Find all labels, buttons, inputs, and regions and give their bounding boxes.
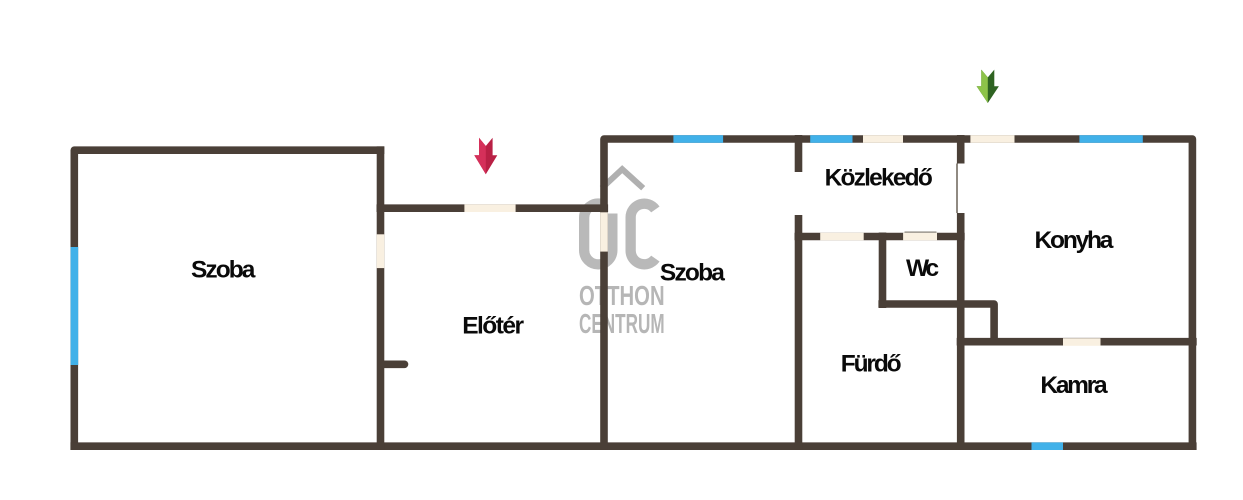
svg-text:CENTRUM: CENTRUM bbox=[579, 308, 665, 339]
svg-text:Kamra: Kamra bbox=[1040, 372, 1108, 399]
svg-text:OTTHON: OTTHON bbox=[579, 280, 665, 311]
svg-text:Közlekedő: Közlekedő bbox=[825, 165, 933, 192]
svg-text:Wc: Wc bbox=[906, 255, 939, 282]
svg-text:Fürdő: Fürdő bbox=[841, 351, 902, 378]
svg-text:Konyha: Konyha bbox=[1035, 227, 1114, 254]
svg-text:Szoba: Szoba bbox=[660, 260, 725, 287]
svg-text:Előtér: Előtér bbox=[462, 313, 524, 340]
svg-text:Szoba: Szoba bbox=[191, 256, 256, 283]
